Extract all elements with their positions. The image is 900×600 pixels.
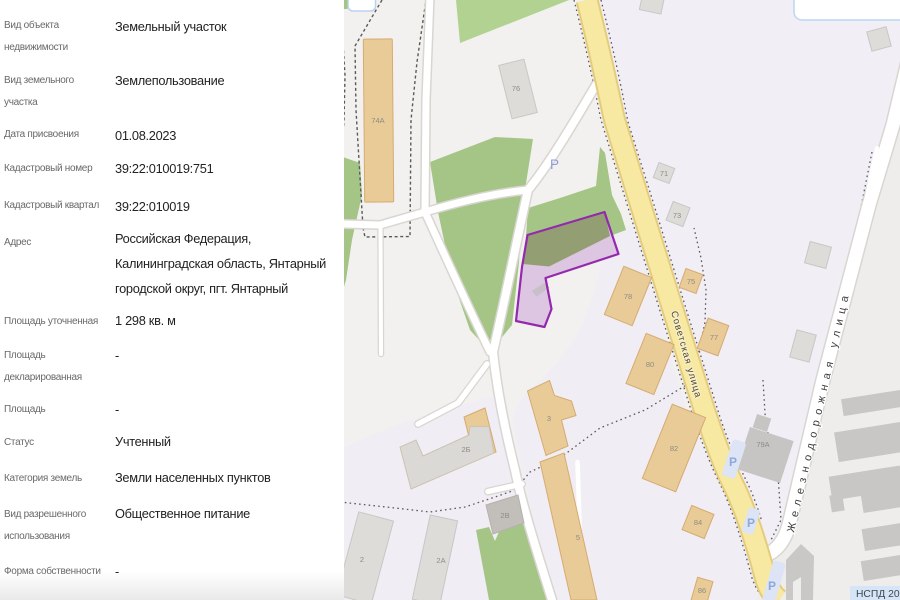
svg-text:73: 73 [673,211,681,220]
svg-text:P: P [550,157,559,172]
svg-text:76: 76 [512,84,520,93]
svg-text:80: 80 [646,360,654,369]
svg-text:P: P [747,516,755,530]
svg-text:2А: 2А [436,556,445,565]
svg-text:75: 75 [687,277,695,286]
svg-text:P: P [768,579,776,593]
svg-text:2В: 2В [500,511,509,520]
svg-text:2Б: 2Б [461,445,470,454]
svg-text:3: 3 [547,414,551,423]
svg-text:86: 86 [698,586,706,595]
svg-text:71: 71 [660,169,668,178]
svg-text:2: 2 [360,555,364,564]
svg-text:82: 82 [670,444,678,453]
svg-text:5: 5 [576,533,580,542]
svg-text:84: 84 [694,518,702,527]
svg-text:НСПД 202: НСПД 202 [856,589,900,600]
svg-text:P: P [729,455,737,469]
svg-text:78: 78 [624,292,632,301]
svg-text:79А: 79А [756,440,769,449]
svg-text:74А: 74А [371,116,384,125]
svg-text:77: 77 [710,333,718,342]
